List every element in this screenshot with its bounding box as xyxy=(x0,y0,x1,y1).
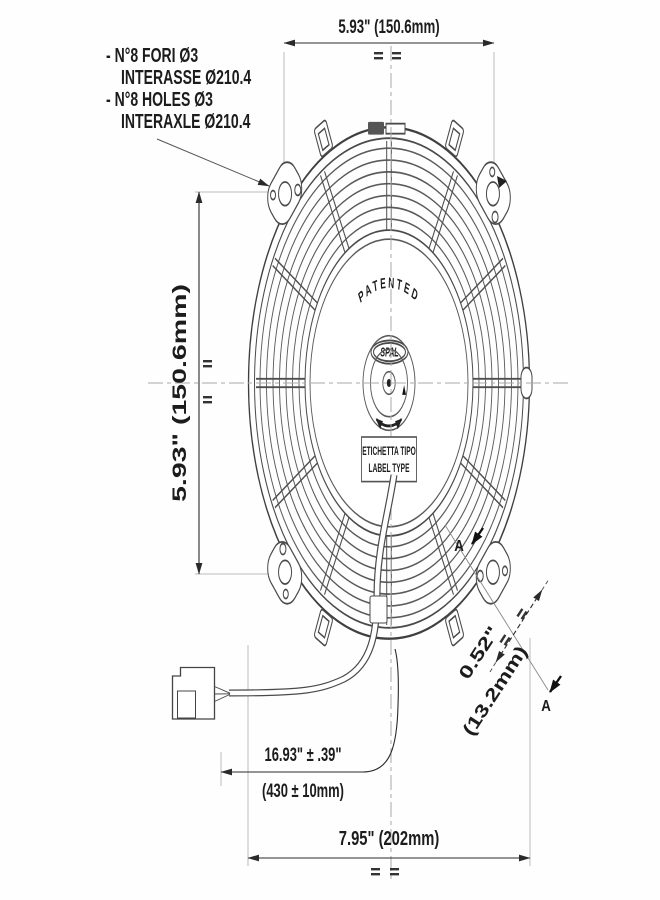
notes-leader-line xyxy=(157,139,269,186)
fan-technical-drawing: PATENTED SPAL ETICHETTA TIPO LABEL TYPE xyxy=(0,0,660,900)
connector-pins xyxy=(215,687,231,702)
top-rim-detail xyxy=(368,122,405,135)
dim-left-label: 5.93" (150.6mm) xyxy=(170,284,191,502)
dim-bottom-label: 7.95" (202mm) xyxy=(339,827,439,850)
dimension-top: 5.93" (150.6mm) xyxy=(284,17,494,60)
equal-marks-top xyxy=(374,52,401,59)
notes-line-1: - N°8 FORI Ø3 xyxy=(106,43,198,66)
label-type-line1: ETICHETTA TIPO xyxy=(362,445,416,459)
cable-length-label-mm: (430 ± 10mm) xyxy=(262,779,344,801)
section-label-a-bottom: A xyxy=(541,698,551,715)
dim-top-label: 5.93" (150.6mm) xyxy=(338,17,439,38)
notes-line-4: INTERAXLE Ø210.4 xyxy=(121,109,251,132)
notes-block: - N°8 FORI Ø3 INTERASSE Ø210.4 - N°8 HOL… xyxy=(106,43,251,132)
cable-clamp xyxy=(370,596,387,623)
label-type-box: ETICHETTA TIPO LABEL TYPE xyxy=(362,437,417,482)
label-type-line2: LABEL TYPE xyxy=(369,462,410,476)
section-arrow-bottom xyxy=(550,676,561,692)
notes-line-3: - N°8 HOLES Ø3 xyxy=(106,87,213,110)
section-arrow-top xyxy=(472,528,483,544)
cable-length-label-in: 16.93" ± .39" xyxy=(265,743,342,765)
dimension-bottom: 7.95" (202mm) xyxy=(248,827,530,876)
equal-marks-bottom xyxy=(371,868,399,875)
section-label-a-top: A xyxy=(454,538,464,555)
equal-marks-depth xyxy=(499,608,527,646)
equal-marks-left xyxy=(203,360,212,403)
technical-drawing-page: PATENTED SPAL ETICHETTA TIPO LABEL TYPE xyxy=(0,0,660,900)
notes-line-2: INTERASSE Ø210.4 xyxy=(121,65,251,88)
connector xyxy=(173,668,231,720)
